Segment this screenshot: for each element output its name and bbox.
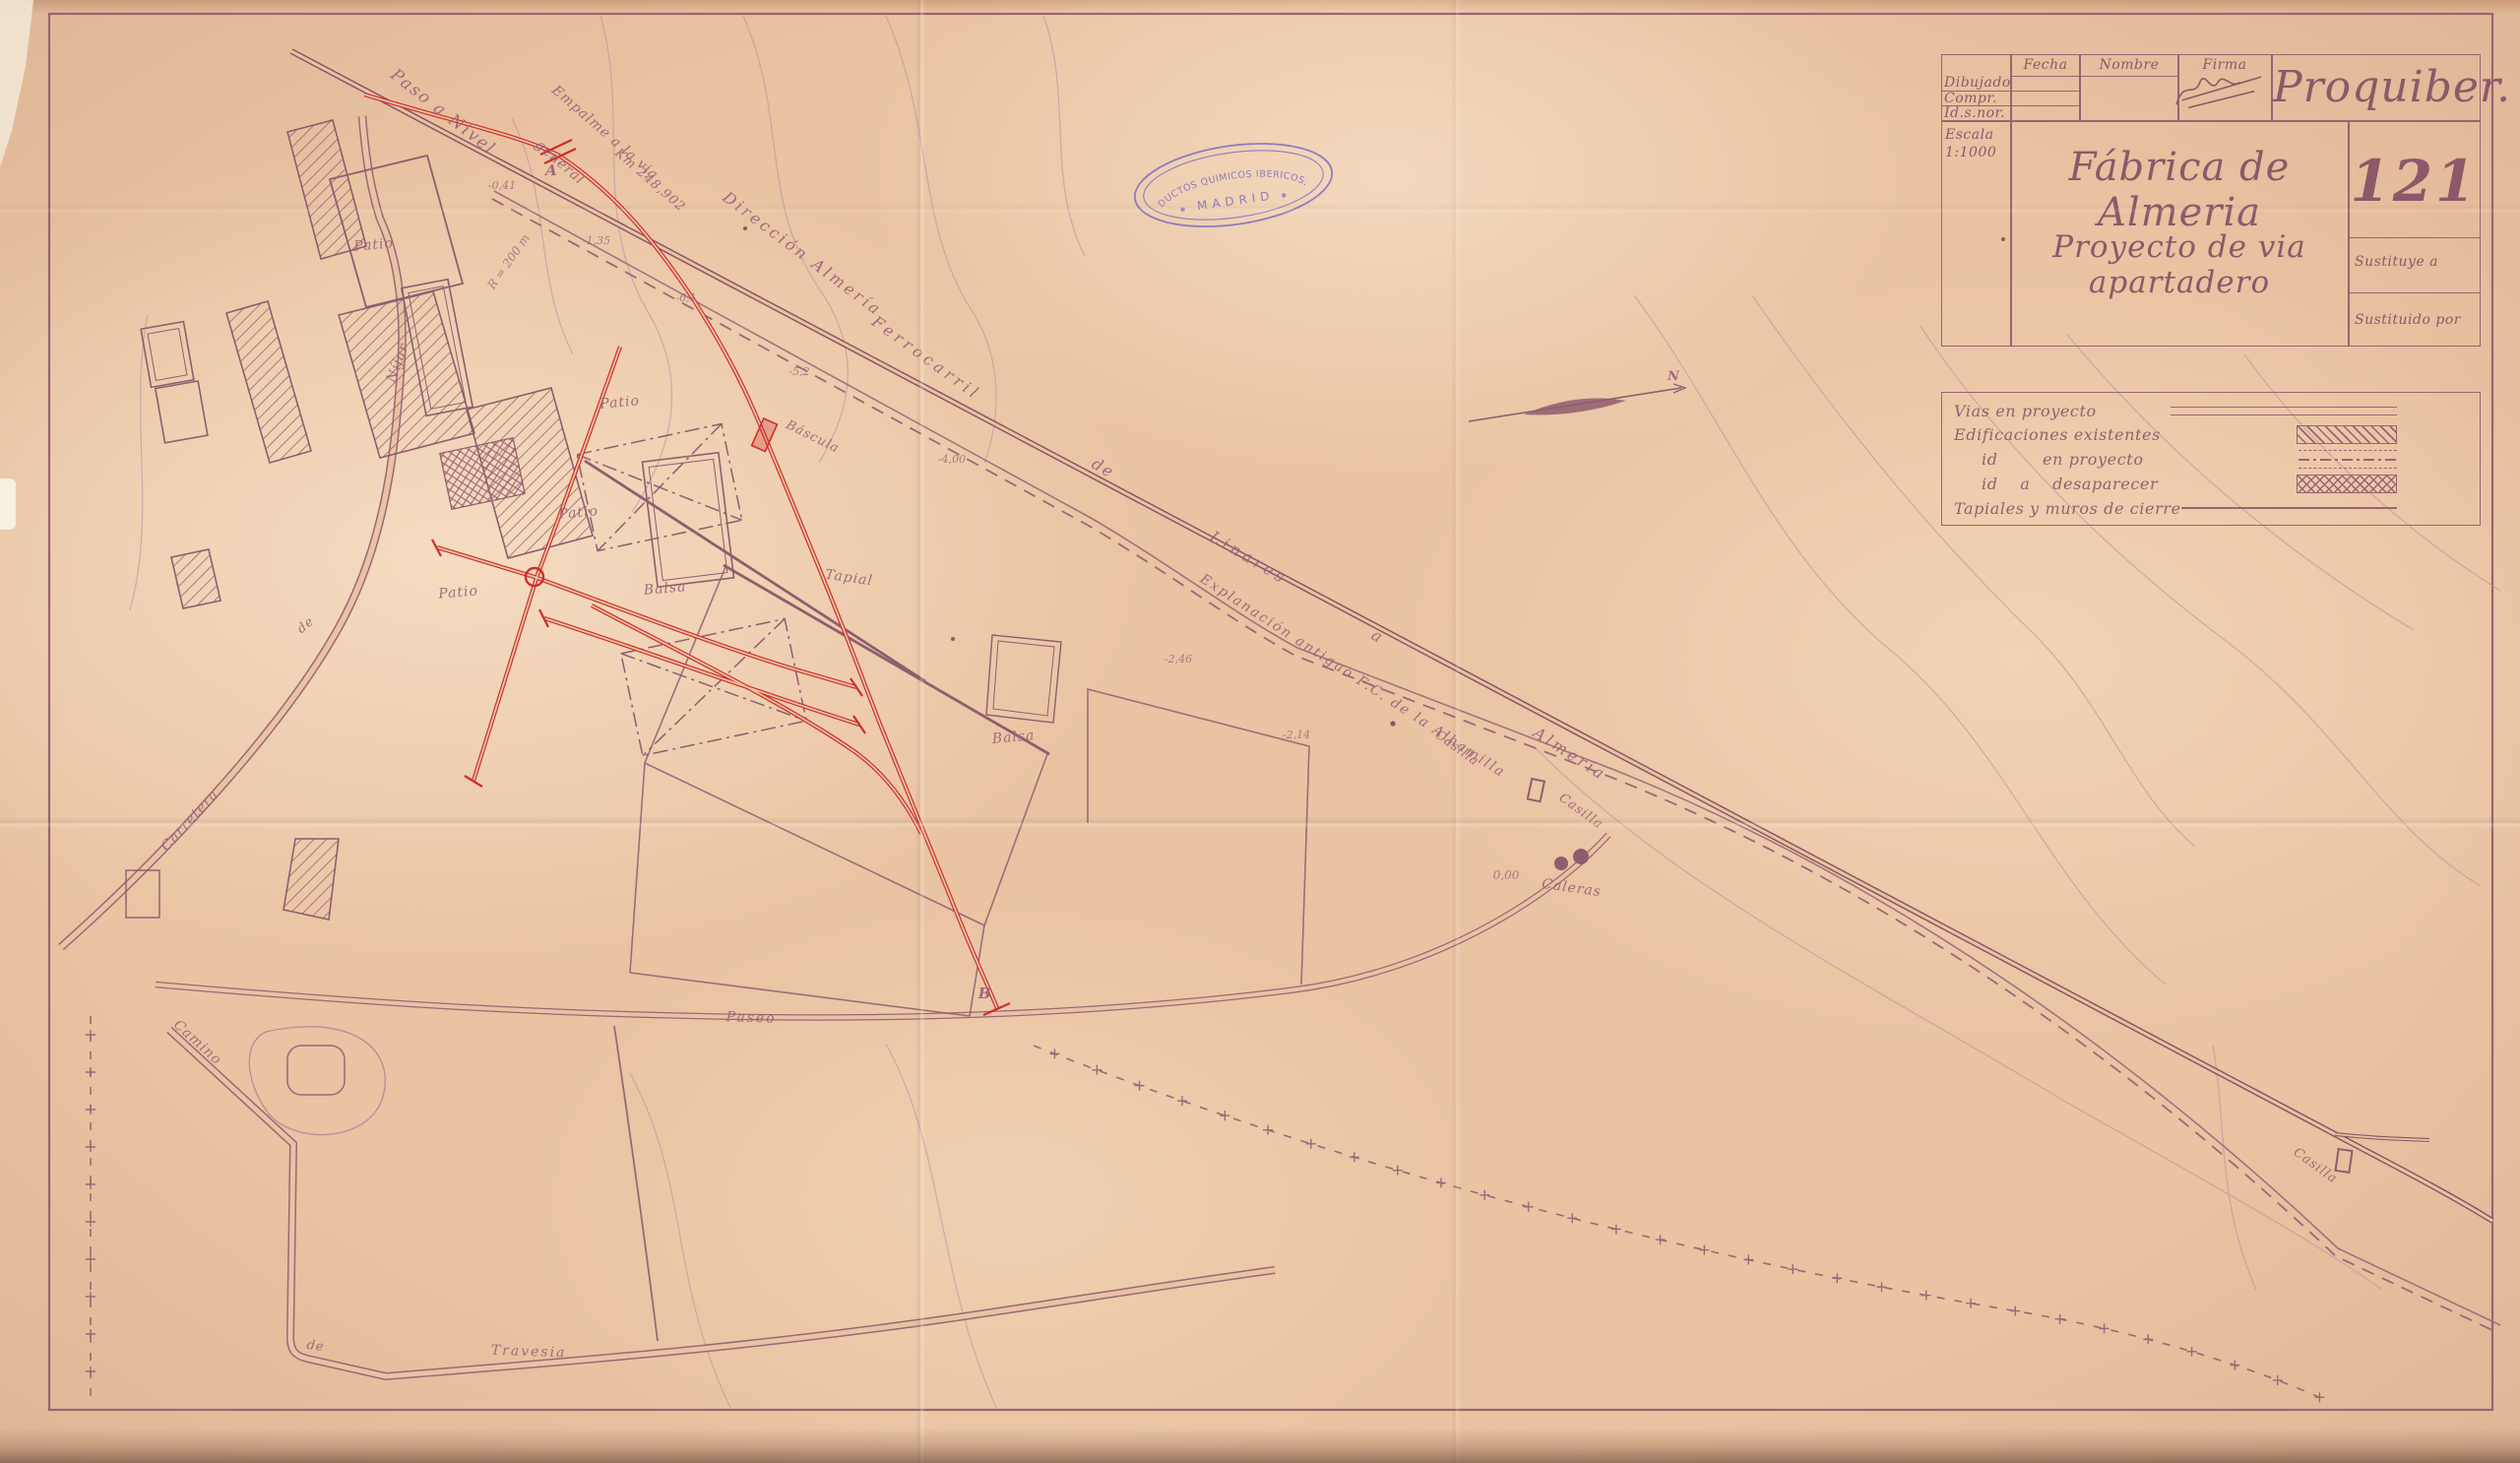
col-header-nombre: Nombre	[2083, 57, 2175, 73]
map-label: -0,41	[488, 179, 516, 192]
boundary-cross	[2314, 1392, 2324, 1402]
drawing-number: 121	[2350, 148, 2479, 215]
boundary-cross	[1049, 1049, 1059, 1058]
company-name: Proquiber.	[2273, 56, 2479, 119]
property-boundaries	[86, 1016, 2324, 1404]
boundary-cross	[1921, 1291, 1931, 1301]
legend: Vias en proyectoEdificaciones existentes…	[1941, 392, 2481, 526]
boundary-cross	[86, 1292, 95, 1302]
boundary-cross	[86, 1030, 95, 1040]
balsa-pond-1	[642, 453, 733, 588]
legend-label: Edificaciones existentes	[1954, 425, 2297, 444]
tapial-walls	[585, 461, 1309, 1016]
boundary-cross	[2230, 1361, 2239, 1370]
boundary-cross	[1788, 1264, 1797, 1274]
boundary-cross	[86, 1367, 95, 1376]
boundary-cross	[2100, 1323, 2110, 1333]
boundary-cross	[86, 1067, 95, 1077]
boundary-cross	[2187, 1347, 2197, 1357]
legend-row: id en proyecto	[1954, 449, 2468, 471]
legend-label: Tapiales y muros de cierre	[1954, 499, 2181, 518]
boundary-cross	[1524, 1202, 1534, 1212]
boundary-cross	[1966, 1299, 1976, 1308]
boundary-cross-ticks	[86, 1030, 2324, 1402]
caleras-kiln	[1573, 849, 1589, 864]
boundary-cross	[2273, 1375, 2283, 1385]
map-label: -4,00	[938, 453, 966, 466]
map-label: Caleras	[1541, 876, 1603, 900]
sustituido-por-label: Sustituido por	[2355, 312, 2477, 328]
boundary-cross	[1263, 1125, 1273, 1135]
paseo-branch-path	[614, 1026, 658, 1341]
balsa-pond-2	[986, 635, 1061, 723]
boundary-cross	[86, 1217, 95, 1227]
paper-bottom-shadow	[0, 1428, 2520, 1463]
legend-swatch-dash-dot	[2299, 450, 2397, 469]
col-header-fecha: Fecha	[2014, 57, 2077, 73]
map-label: N	[1667, 369, 1680, 384]
map-label: R = 200 m	[484, 231, 533, 292]
boundary-cross	[1177, 1096, 1187, 1106]
boundary-cross	[1436, 1177, 1446, 1187]
legend-row: id a desaparecer	[1954, 473, 2468, 494]
stamp-ornament: ✱	[1179, 205, 1191, 214]
legend-swatch-crosshatch	[2297, 475, 2397, 493]
building-existing	[171, 549, 220, 608]
map-label: Casilla	[1556, 791, 1606, 832]
camino-travesia-road	[169, 1030, 1275, 1376]
map-label: a	[1368, 625, 1388, 647]
building-double-outline	[141, 321, 208, 444]
building-existing	[283, 839, 339, 920]
siding-main-A-B	[364, 95, 997, 1008]
map-label: Travesia	[491, 1343, 567, 1362]
legend-row: Vias en proyecto	[1954, 400, 2468, 421]
legend-items: Vias en proyectoEdificaciones existentes…	[1954, 400, 2468, 519]
legend-label: id en proyecto	[1954, 450, 2299, 469]
escala-value: 1:1000	[1945, 145, 2008, 160]
legend-row: Tapiales y muros de cierre	[1954, 497, 2468, 519]
plan-title: Fábrica de Almeria	[2012, 145, 2347, 235]
map-label: 0,00	[1493, 868, 1520, 882]
siding-upper	[437, 547, 856, 687]
building-existing	[226, 301, 311, 463]
building-projected-dashdot	[621, 618, 806, 755]
boundary-cross	[86, 1142, 95, 1152]
boundary-cross	[86, 1179, 95, 1189]
boundary-cross	[1656, 1235, 1666, 1244]
legend-swatch-hatch	[2297, 425, 2397, 444]
row-label-idsnor: Id.s.nor.	[1944, 105, 2007, 121]
boundary-cross	[1480, 1190, 1489, 1200]
boundary-cross	[2010, 1306, 2020, 1316]
scanned-plan-sheet: Paso a NivelEmpalme a la viageneralKm 24…	[0, 0, 2520, 1463]
map-label: Dirección Almería	[719, 187, 886, 320]
siding-connector-curve	[592, 605, 921, 834]
map-label: Balsa	[990, 728, 1036, 747]
map-label: Balsa	[642, 579, 687, 599]
boundary-cross	[1393, 1166, 1403, 1176]
map-label: B	[977, 985, 991, 1002]
boundary-cross	[1306, 1139, 1316, 1149]
legend-label: id a desaparecer	[1954, 475, 2297, 493]
map-label: Carretera	[158, 787, 222, 855]
escala-label: Escala	[1945, 127, 2008, 143]
roads	[61, 116, 1608, 1376]
casilla-hut	[1528, 779, 1544, 801]
legend-row: Edificaciones existentes	[1954, 424, 2468, 446]
map-label: Patio	[437, 583, 479, 603]
boundary-cross	[86, 1329, 95, 1339]
caleras-kiln	[1554, 857, 1568, 870]
boundary-cross	[1876, 1282, 1886, 1292]
north-arrow	[1469, 384, 1685, 421]
map-label: -2,46	[1165, 653, 1192, 666]
map-label: -5,2	[788, 365, 809, 378]
paseo-road	[156, 835, 1608, 1018]
boundary-cross	[1832, 1273, 1842, 1283]
map-label: Patio	[557, 503, 599, 523]
boundary-cross	[1135, 1081, 1145, 1091]
boundary-cross	[86, 1254, 95, 1264]
proposed-siding-tracks	[364, 95, 1010, 1015]
boundary-cross	[2055, 1314, 2065, 1324]
boundary-cross	[1350, 1152, 1359, 1162]
map-label: de	[294, 614, 317, 637]
boundary-cross	[86, 1105, 95, 1114]
boundary-cross	[1743, 1255, 1753, 1265]
map-label: Tapial	[824, 567, 874, 590]
boundary-cross	[1611, 1224, 1621, 1234]
boundary-cross	[1220, 1111, 1229, 1120]
map-label: A	[543, 161, 557, 179]
boundary-cross	[2143, 1334, 2153, 1344]
row-label-compr: Compr.	[1944, 91, 2007, 106]
legend-label: Vias en proyecto	[1954, 402, 2171, 420]
map-label: Patio	[598, 393, 641, 413]
signature-scribble	[2168, 64, 2276, 117]
stamp-ornament: ✱	[1281, 191, 1292, 200]
boundary-cross	[1699, 1245, 1709, 1255]
map-label: Casilla	[2291, 1145, 2341, 1186]
boundary-cross	[1567, 1213, 1577, 1223]
paper-blemishes	[743, 226, 2005, 727]
map-label: -2,14	[1283, 729, 1310, 741]
plan-subtitle: Proyecto de via apartadero	[2012, 229, 2347, 300]
boundary-cross	[1092, 1065, 1102, 1075]
sustituye-a-label: Sustituye a	[2355, 254, 2477, 270]
casilla-hut	[2336, 1149, 2353, 1173]
company-stamp: PRODUCTOS QUIMICOS IBERICOS, S.A. ✱MADRI…	[1110, 118, 1356, 256]
map-label: Km 248,902	[611, 146, 688, 216]
map-label: Paseo	[724, 1009, 777, 1027]
legend-swatch-double-line	[2171, 407, 2397, 415]
map-label: de	[306, 1338, 326, 1355]
title-block: Fecha Nombre Firma Dibujado Compr. Id.s.…	[1941, 54, 2481, 347]
bascula-symbol	[752, 418, 778, 452]
row-label-dibujado: Dibujado	[1944, 75, 2007, 91]
paper-notch	[0, 478, 16, 530]
map-label: -1,35	[583, 234, 610, 247]
map-label: -6,1	[675, 291, 696, 304]
legend-swatch-line	[2181, 507, 2397, 509]
